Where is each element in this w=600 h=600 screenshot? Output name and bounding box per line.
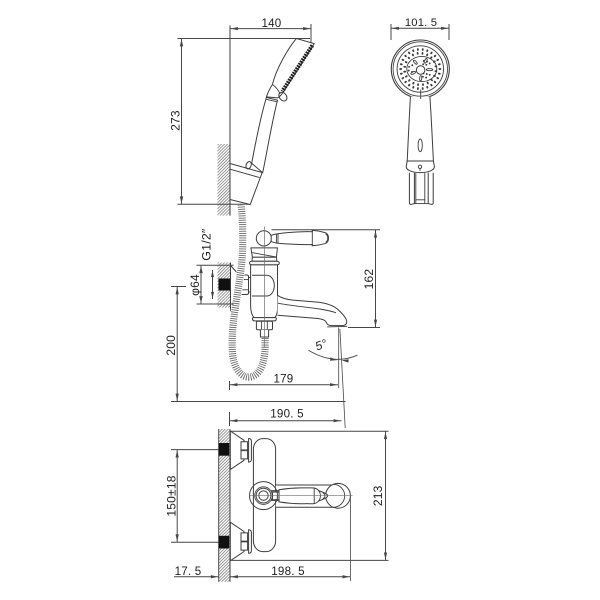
svg-text:φ64: φ64 — [188, 274, 202, 296]
svg-text:150±18: 150±18 — [165, 475, 179, 516]
svg-text:198. 5: 198. 5 — [271, 565, 304, 578]
svg-text:273: 273 — [168, 110, 182, 131]
svg-text:17. 5: 17. 5 — [175, 565, 202, 578]
svg-text:200: 200 — [164, 335, 178, 356]
svg-text:179: 179 — [274, 373, 294, 386]
svg-text:140: 140 — [262, 17, 282, 30]
svg-text:101. 5: 101. 5 — [405, 17, 437, 29]
svg-text:G1/2″: G1/2″ — [200, 228, 214, 261]
svg-text:213: 213 — [371, 485, 385, 506]
svg-text:190. 5: 190. 5 — [270, 407, 303, 420]
svg-text:162: 162 — [362, 269, 376, 290]
